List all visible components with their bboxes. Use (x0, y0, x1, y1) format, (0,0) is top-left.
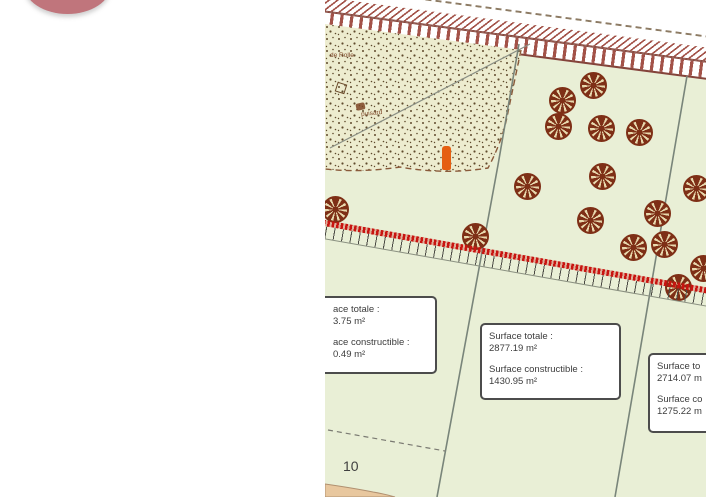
surface-totale-label: ace totale : (333, 304, 428, 316)
rose-circle-decoration (24, 0, 111, 14)
map-label-de-rolle: de Rolle (330, 52, 354, 59)
surface-totale-label: Surface to (657, 361, 706, 373)
tree-icon (514, 173, 541, 200)
tree-icon (644, 200, 671, 227)
surface-totale-value: 2714.07 m (657, 373, 706, 385)
surface-constructible-label: Surface co (657, 394, 706, 406)
tree-icon (325, 196, 349, 223)
tree-icon (589, 163, 616, 190)
tree-icon (651, 231, 678, 258)
surface-constructible-value: 1430.95 m² (489, 376, 612, 388)
surface-totale-value: 2877.19 m² (489, 343, 612, 355)
surface-constructible-value: 1275.22 m (657, 406, 706, 418)
surface-totale-label: Surface totale : (489, 331, 612, 343)
surface-box-left: ace totale : 3.75 m² ace constructible :… (325, 296, 437, 374)
tree-icon (620, 234, 647, 261)
tree-icon (545, 113, 572, 140)
surface-box-middle: Surface totale : 2877.19 m² Surface cons… (480, 323, 621, 400)
orange-marker-icon (442, 146, 451, 170)
tree-icon (580, 72, 607, 99)
surface-box-right: Surface to 2714.07 m Surface co 1275.22 … (648, 353, 706, 433)
tree-icon (577, 207, 604, 234)
surface-constructible-value: 0.49 m² (333, 349, 428, 361)
surface-totale-value: 3.75 m² (333, 316, 428, 328)
tree-icon (549, 87, 576, 114)
parcel-number: 10 (343, 458, 359, 474)
dashed-boundary-line (328, 430, 445, 451)
map-canvas[interactable]: de Rolle puisard ace totale : 3.75 m² ac… (325, 0, 706, 497)
stipple-dots (325, 24, 522, 171)
surface-constructible-label: Surface constructible : (489, 364, 612, 376)
road-corner-shape (325, 484, 395, 497)
tree-icon (626, 119, 653, 146)
surface-constructible-label: ace constructible : (333, 337, 428, 349)
tree-icon (683, 175, 706, 202)
page: de Rolle puisard ace totale : 3.75 m² ac… (0, 0, 706, 497)
tree-icon (588, 115, 615, 142)
